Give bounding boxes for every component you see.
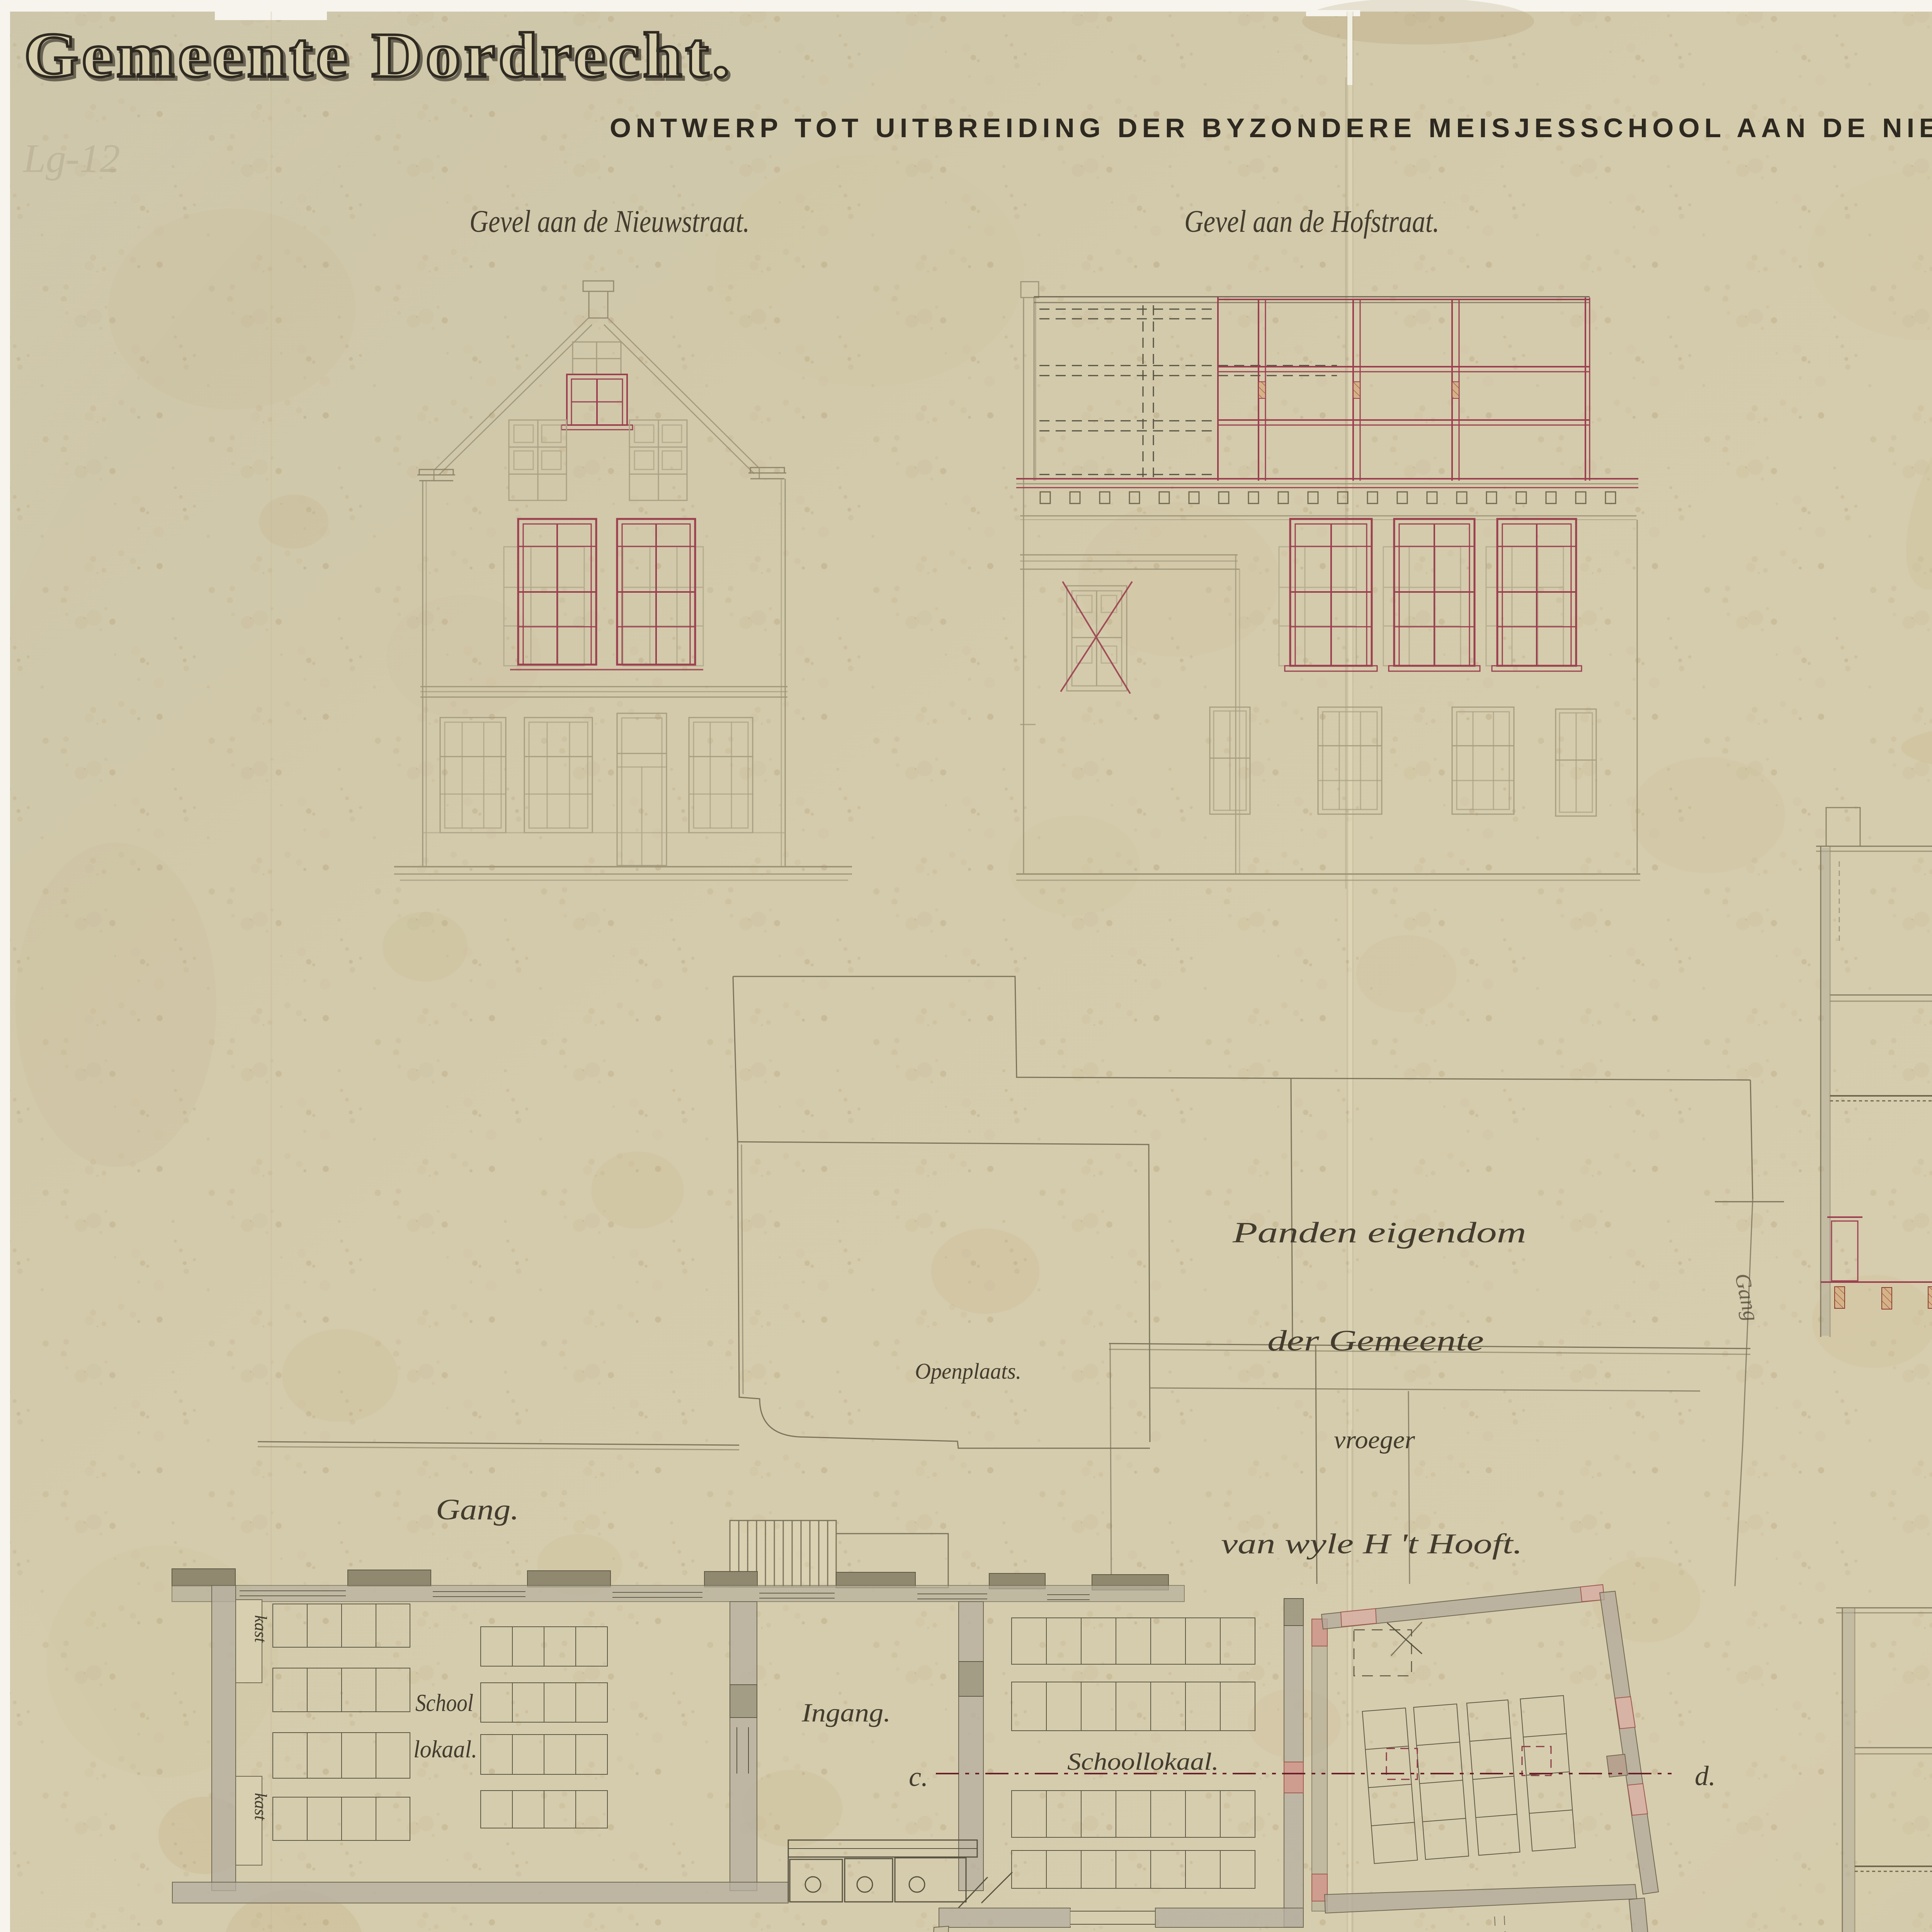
svg-text:Gevel aan de Nieuwstraat.: Gevel aan de Nieuwstraat. bbox=[469, 204, 750, 239]
svg-text:Ingang.: Ingang. bbox=[801, 1698, 891, 1727]
svg-text:Schoollokaal.: Schoollokaal. bbox=[1067, 1748, 1219, 1775]
svg-text:Lg-12: Lg-12 bbox=[22, 136, 120, 181]
svg-text:c.: c. bbox=[909, 1761, 928, 1792]
svg-text:kast: kast bbox=[251, 1793, 270, 1821]
svg-text:lokaal.: lokaal. bbox=[413, 1735, 477, 1763]
svg-text:der Gemeente: der Gemeente bbox=[1267, 1325, 1484, 1357]
svg-text:vroeger: vroeger bbox=[1334, 1426, 1415, 1454]
svg-text:Openplaats.: Openplaats. bbox=[915, 1359, 1021, 1384]
svg-text:kast: kast bbox=[251, 1615, 270, 1643]
svg-text:van wyle H 't Hooft.: van wyle H 't Hooft. bbox=[1221, 1528, 1522, 1560]
svg-text:School: School bbox=[415, 1689, 473, 1716]
svg-text:d.: d. bbox=[1695, 1760, 1716, 1791]
svg-text:ONTWERP TOT UITBREIDING DER BY: ONTWERP TOT UITBREIDING DER BYZONDERE ME… bbox=[610, 113, 1932, 143]
svg-text:Panden eigendom: Panden eigendom bbox=[1232, 1216, 1526, 1249]
svg-text:Gemeente Dordrecht.: Gemeente Dordrecht. bbox=[24, 20, 733, 90]
svg-text:Gevel aan de Hofstraat.: Gevel aan de Hofstraat. bbox=[1184, 204, 1439, 239]
svg-text:Gang.: Gang. bbox=[436, 1493, 519, 1526]
